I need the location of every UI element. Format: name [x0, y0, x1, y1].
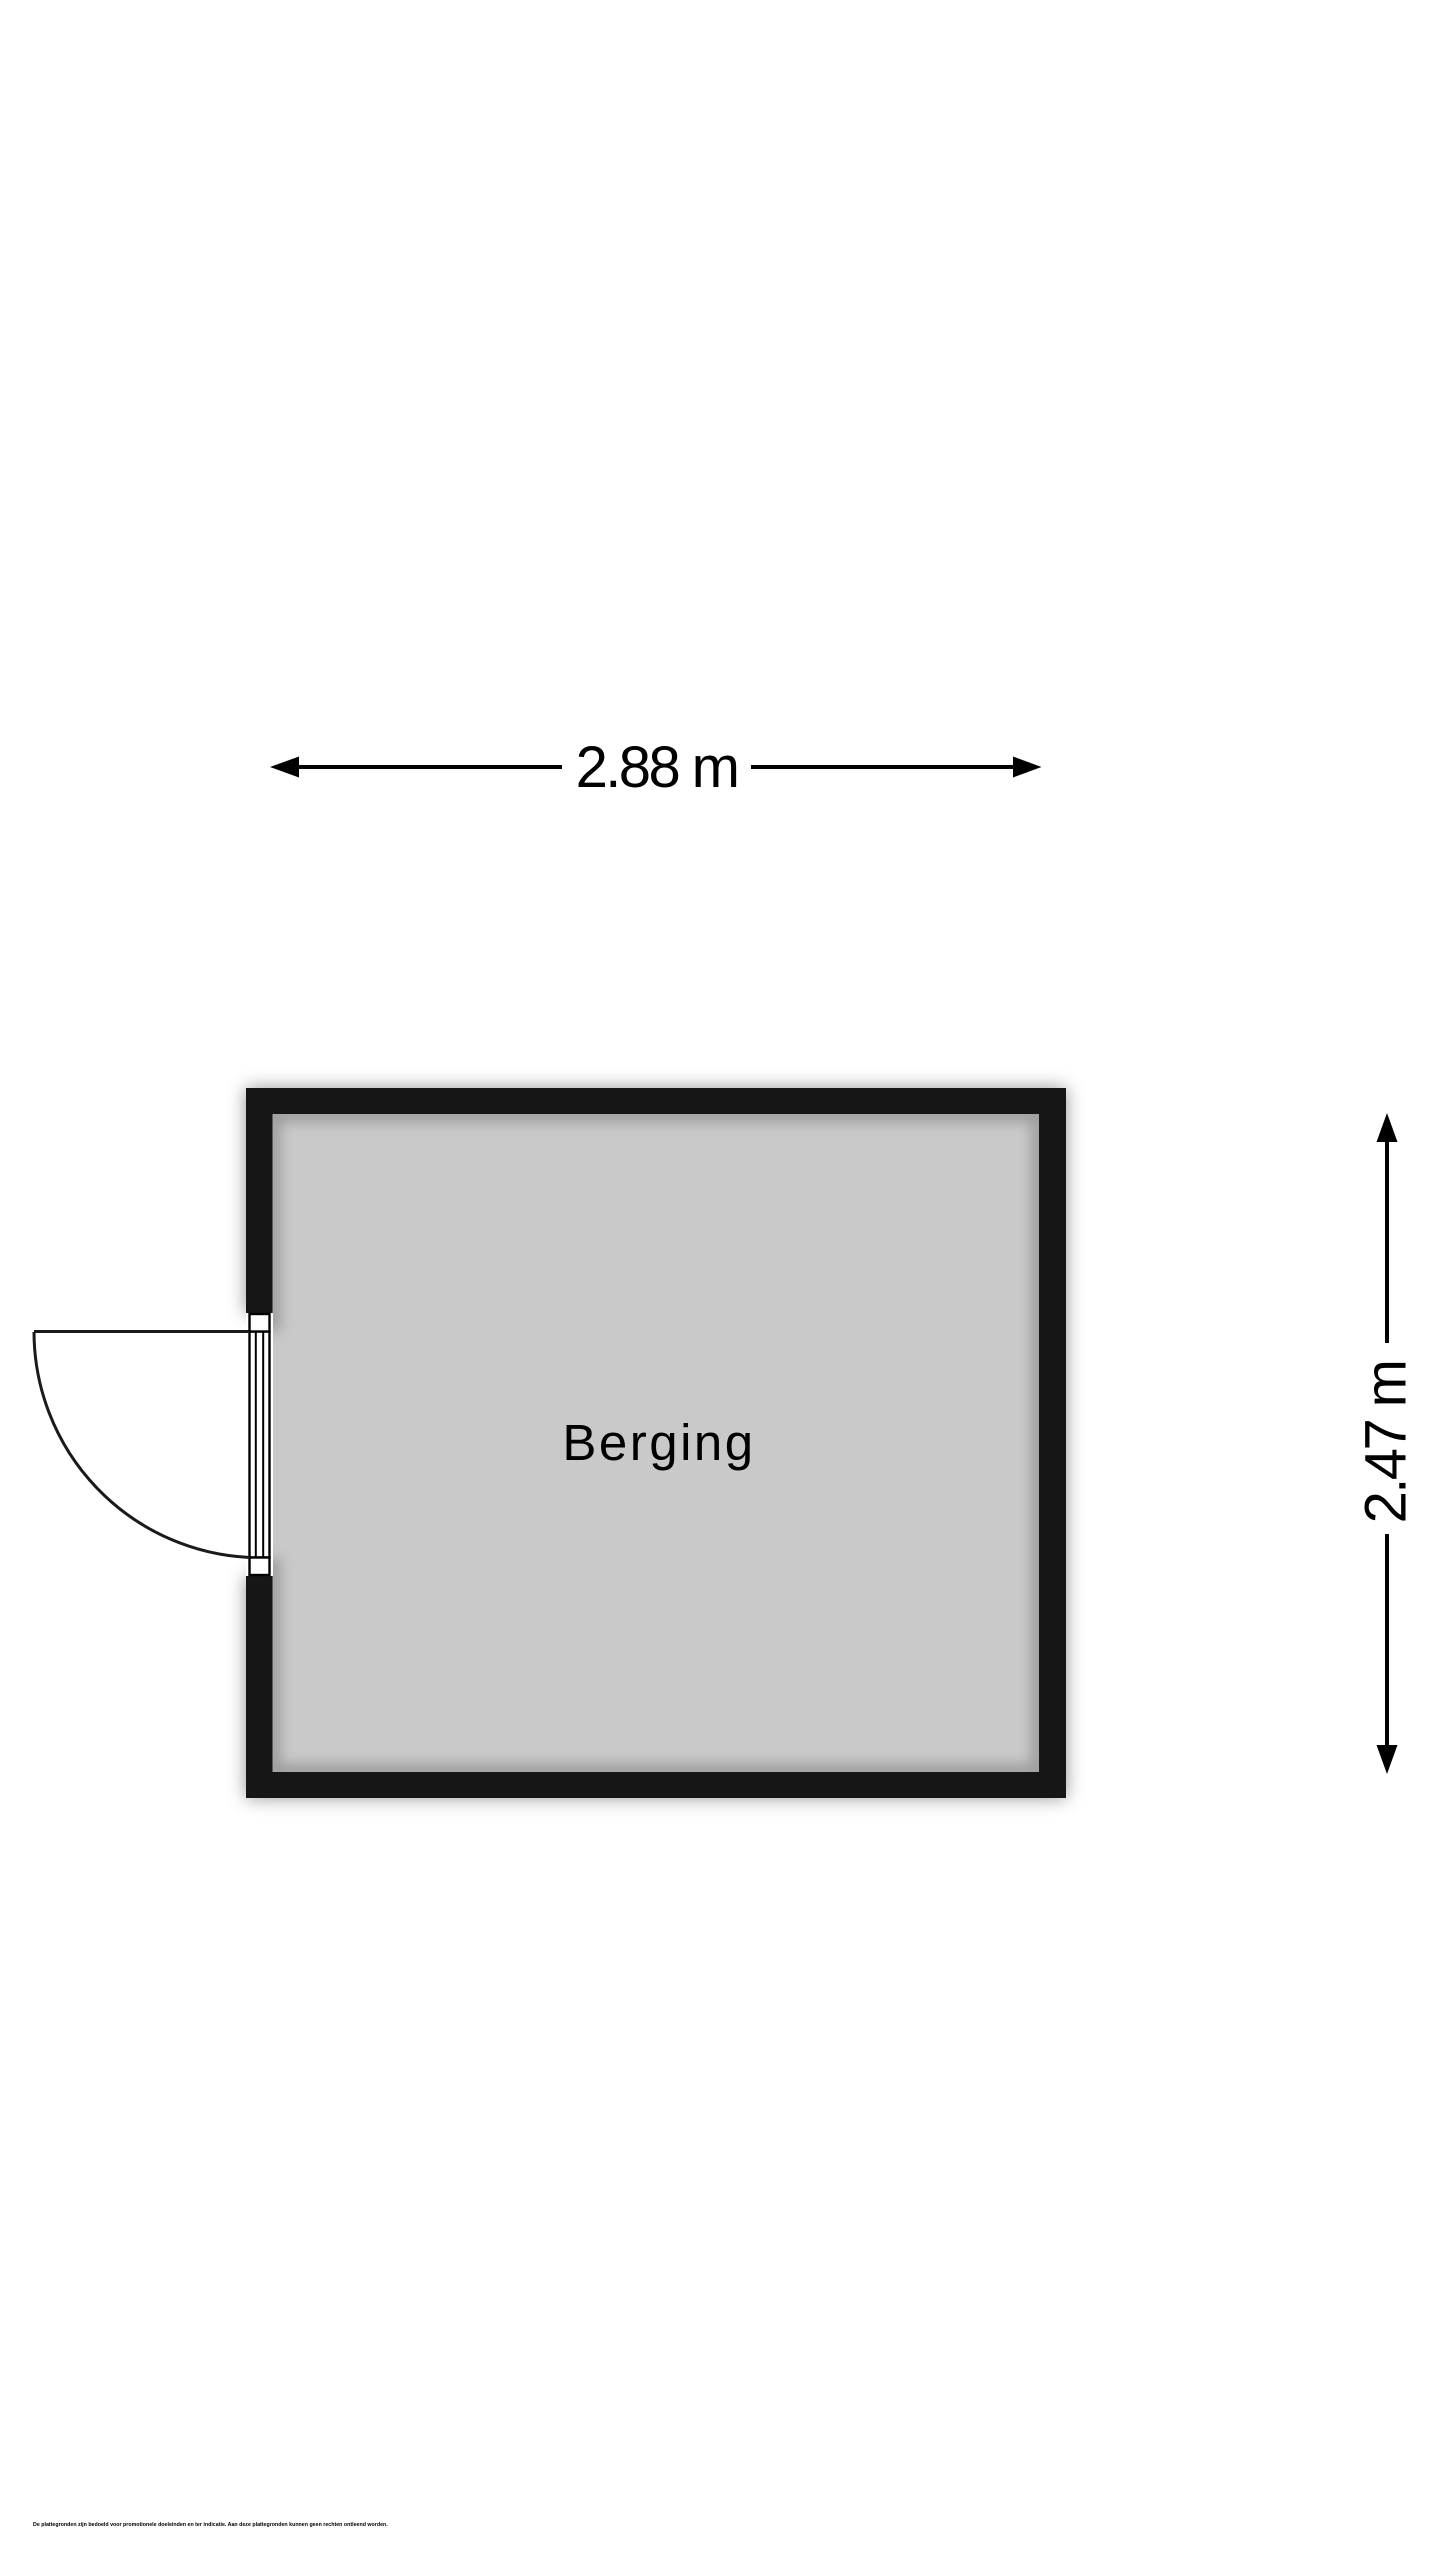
svg-text:De plattegronden zijn bedoeld: De plattegronden zijn bedoeld voor promo… — [33, 2522, 388, 2528]
svg-text:Berging: Berging — [562, 1414, 755, 1471]
svg-text:2.47 m: 2.47 m — [1354, 1362, 1419, 1524]
svg-text:2.88 m: 2.88 m — [576, 735, 738, 800]
